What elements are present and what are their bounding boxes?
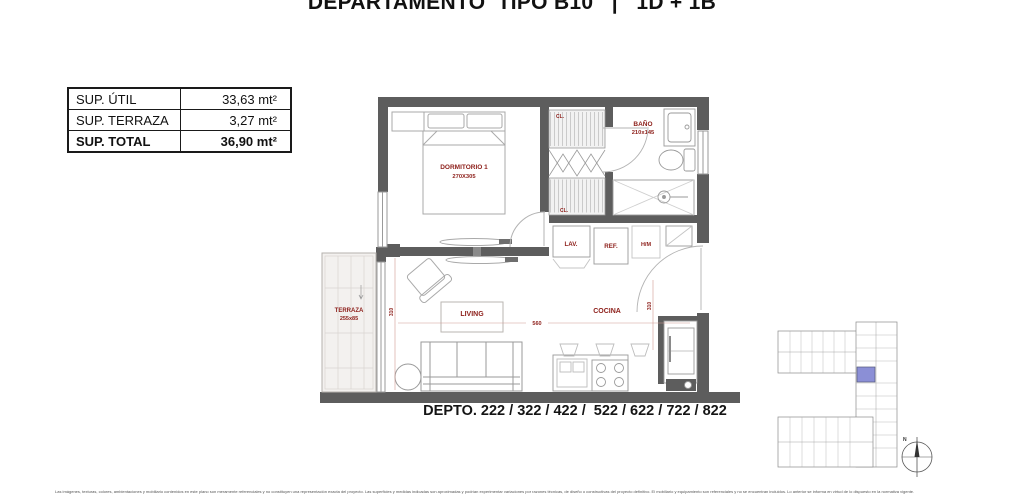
toilet-bowl — [659, 150, 683, 170]
stool — [596, 344, 614, 356]
door-arc-bedroom — [510, 212, 545, 247]
north-needle — [915, 440, 920, 457]
lav-label: LAV. — [564, 241, 577, 248]
toilet-tank — [684, 149, 695, 171]
faucet — [685, 125, 689, 129]
tv-shelf-bottom — [446, 257, 514, 264]
wall-tv — [400, 247, 541, 256]
appliance-knob — [685, 382, 692, 389]
dim-living-width: 560 — [532, 321, 541, 327]
side-table — [395, 364, 421, 390]
wall-right-a — [697, 107, 709, 130]
bed — [423, 131, 505, 214]
floor-plan-drawing: TERRAZA 255x85 DORMITORIO 1 270X305 — [0, 0, 1024, 500]
terraza-label: TERRAZA — [335, 308, 364, 314]
bed-fold-left — [423, 131, 437, 145]
closet-top-label: CL. — [556, 114, 565, 120]
stool — [560, 344, 578, 356]
pillow — [467, 114, 502, 128]
bifold-doors-bottom — [549, 154, 605, 176]
bano-label: BAÑO — [633, 119, 652, 128]
closet-bottom — [549, 178, 605, 215]
armchair — [403, 255, 453, 304]
wall-bottom — [320, 392, 740, 403]
lav-front — [553, 259, 590, 268]
tv-shelf-top — [440, 239, 508, 246]
stool — [631, 344, 649, 356]
wall-right-c — [697, 313, 709, 403]
bano-dims: 210x145 — [632, 130, 655, 136]
kitchen: COCINA LAV. REF. H/M — [553, 226, 703, 391]
bifold-doors-top — [549, 150, 605, 172]
tv-panel — [505, 257, 518, 262]
legal-disclaimer: Las imágenes, texturas, colores, ambient… — [55, 489, 975, 494]
cocina-label: COCINA — [593, 308, 621, 315]
wall-top — [378, 97, 709, 107]
pillow — [428, 114, 464, 128]
dim-cocina-depth: 310 — [647, 302, 653, 311]
sink-basin — [668, 113, 691, 142]
wall-right-b — [697, 174, 709, 243]
bedroom: DORMITORIO 1 270X305 — [392, 112, 518, 304]
keyplan-unit-highlight — [857, 367, 875, 382]
wall-dorm-hall — [540, 107, 549, 212]
terraza-floor — [322, 253, 376, 392]
fridge-wall-top — [658, 316, 697, 321]
depto-numbers: DEPTO. 222 / 322 / 422 / 522 / 622 / 722… — [410, 403, 740, 419]
north-label: N — [903, 437, 907, 443]
dormitorio-dims: 270X305 — [452, 174, 476, 180]
dim-living-depth: 310 — [389, 308, 395, 317]
ref-label: REF. — [604, 243, 618, 250]
wall-left-upper — [378, 107, 388, 192]
closet-bottom-label: CL. — [560, 208, 569, 214]
north-arrow: N — [902, 437, 932, 477]
key-plan — [778, 322, 897, 467]
tv-pivot — [473, 247, 481, 256]
wall-stub-door — [540, 247, 549, 256]
bed-fold-right — [491, 131, 505, 145]
closets: CL. CL. — [549, 110, 605, 215]
terraza: TERRAZA 255x85 — [322, 253, 376, 392]
hm-label: H/M — [641, 242, 652, 248]
plan-sheet: DEPARTAMENTO TIPO B10 | 1D + 1B SUP. ÚTI… — [0, 0, 1024, 500]
living-label: LIVING — [460, 311, 484, 318]
wall-mid — [549, 215, 697, 223]
fridge-wall — [658, 316, 664, 384]
cabinet-diag — [666, 226, 692, 246]
wall-bath-left-a — [605, 107, 613, 127]
dimensions: 560 310 310 — [389, 258, 690, 390]
shower-drain-dot — [663, 196, 666, 199]
wall-bath-left-b — [605, 172, 613, 218]
dormitorio-label: DORMITORIO 1 — [440, 164, 488, 171]
terraza-dims: 255x85 — [340, 316, 358, 322]
bathroom: BAÑO 210x145 — [603, 109, 695, 215]
